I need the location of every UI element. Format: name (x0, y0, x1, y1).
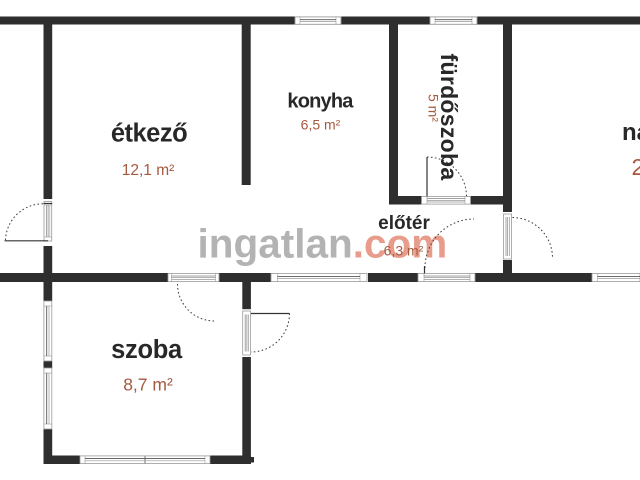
svg-text:6,5 m²: 6,5 m² (301, 117, 341, 133)
svg-text:8,7 m²: 8,7 m² (123, 375, 173, 395)
svg-text:előtér: előtér (378, 213, 430, 234)
svg-text:6,3 m²: 6,3 m² (384, 243, 424, 259)
svg-text:12,1 m²: 12,1 m² (122, 162, 175, 179)
svg-text:étkező: étkező (111, 120, 187, 148)
svg-text:konyha: konyha (287, 91, 354, 113)
svg-text:szoba: szoba (111, 336, 183, 364)
svg-text:5 m²: 5 m² (426, 94, 442, 122)
svg-text:24,9 m²: 24,9 m² (632, 154, 640, 180)
svg-text:nappali: nappali (622, 119, 640, 146)
